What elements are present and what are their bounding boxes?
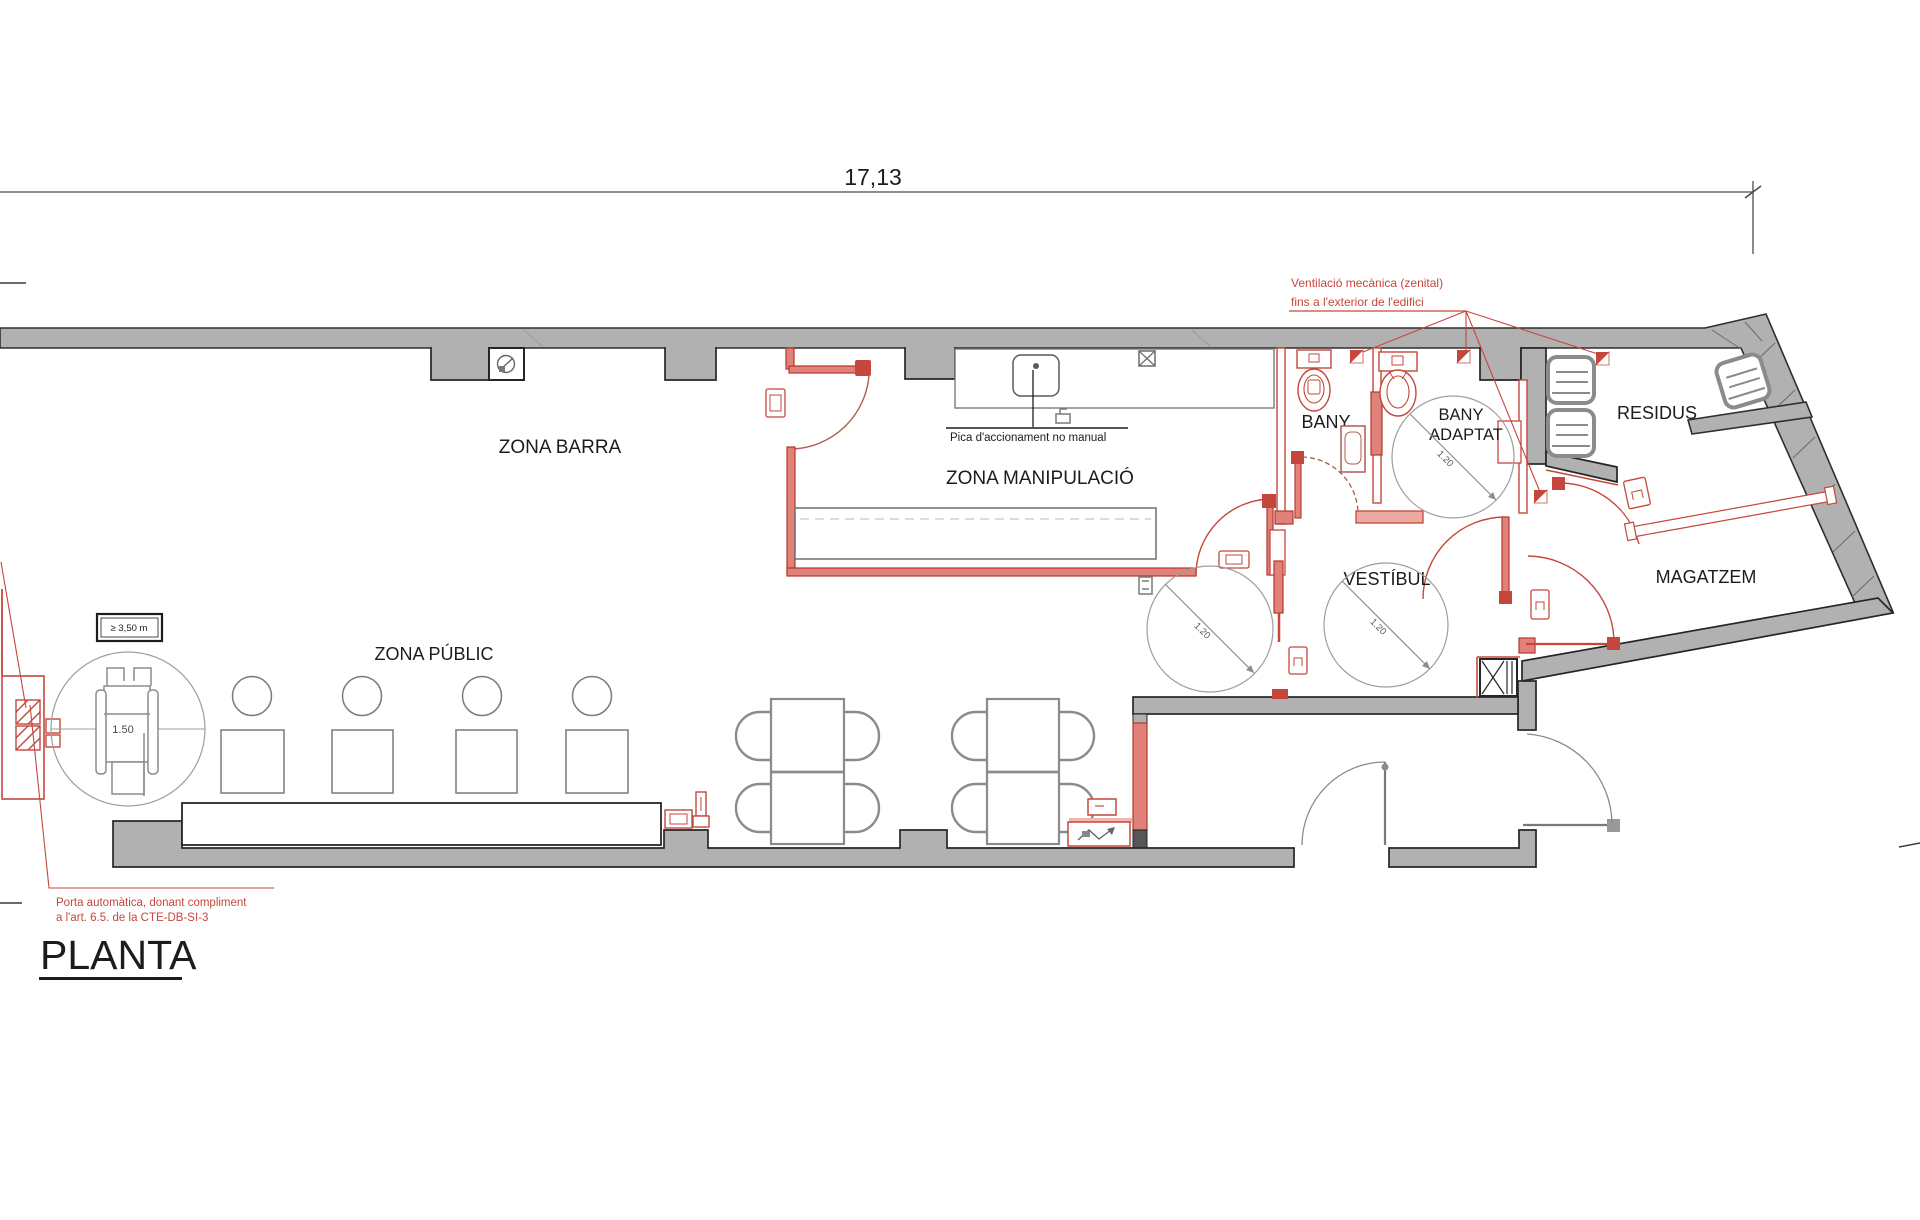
svg-text:ZONA MANIPULACIÓ: ZONA MANIPULACIÓ [946, 467, 1134, 489]
svg-text:a l'art. 6.5. de la CTE-DB-SI-: a l'art. 6.5. de la CTE-DB-SI-3 [56, 912, 208, 924]
svg-text:ZONA BARRA: ZONA BARRA [499, 437, 622, 458]
svg-text:BANY: BANY [1439, 406, 1484, 424]
svg-text:MAGATZEM: MAGATZEM [1656, 567, 1757, 587]
svg-text:Ventilació mecànica (zenital): Ventilació mecànica (zenital) [1291, 276, 1443, 290]
svg-text:ZONA PÚBLIC: ZONA PÚBLIC [374, 643, 493, 664]
svg-text:Porta automàtica, donant compl: Porta automàtica, donant compliment [56, 897, 247, 909]
svg-text:Pica d'accionament no manual: Pica d'accionament no manual [950, 432, 1106, 444]
svg-text:≥ 3,50 m: ≥ 3,50 m [111, 623, 148, 634]
svg-text:1.50: 1.50 [112, 724, 133, 736]
svg-text:RESIDUS: RESIDUS [1617, 403, 1697, 423]
svg-text:fins a l'exterior de l'edifici: fins a l'exterior de l'edifici [1291, 295, 1424, 309]
svg-text:17,13: 17,13 [844, 164, 902, 190]
svg-text:ADAPTAT: ADAPTAT [1429, 426, 1503, 444]
svg-text:PLANTA: PLANTA [40, 932, 197, 978]
